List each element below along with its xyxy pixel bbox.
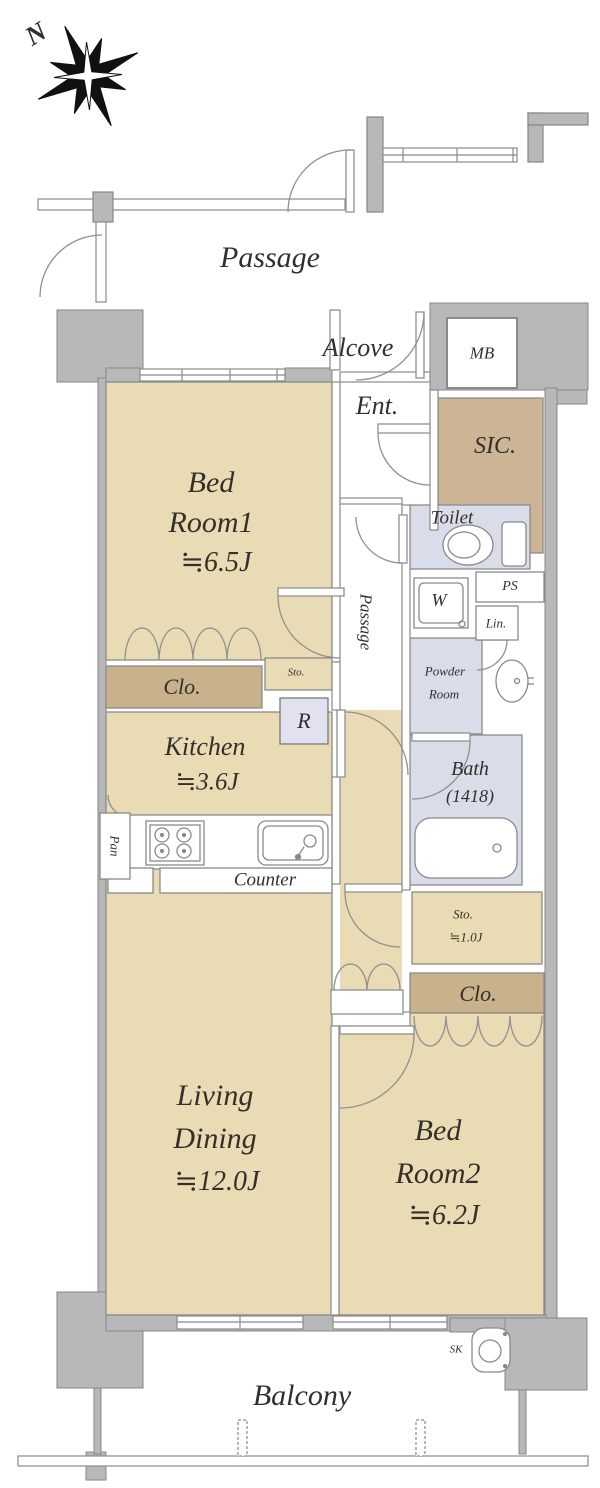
storage-br2-label: Sto. (453, 908, 473, 921)
linen-label: Lin. (486, 617, 507, 630)
wall-top-a (106, 368, 140, 382)
corridor-passage-label: Passage (220, 243, 320, 273)
bedroom2-label-line2: Room2 (396, 1159, 481, 1189)
toilet-door-arc (356, 517, 402, 563)
powder-room-label-line1: Powder (425, 665, 465, 678)
toilet-label: Toilet (431, 509, 474, 528)
refrigerator-label: R (297, 710, 310, 732)
bedroom1-window (140, 369, 285, 381)
wash-basin-icon (496, 660, 534, 702)
living-storage-box (331, 990, 403, 1014)
inner-passage-label: Passage (358, 594, 375, 651)
passage-west-wall-upper (332, 662, 340, 710)
passage-west-wall-lower (332, 777, 340, 884)
corridor-door-arc-left (40, 235, 102, 297)
living-door-leaf (345, 884, 402, 892)
slop-sink-icon (472, 1328, 510, 1372)
stove-icon (146, 821, 204, 865)
living-balcony-window (177, 1316, 303, 1329)
shoe-closet-label: SIC. (474, 434, 516, 458)
kitchen-sink-icon (258, 821, 328, 865)
entrance-step (340, 498, 402, 504)
balcony-railing (18, 1420, 588, 1466)
pipe-space-label: PS (502, 580, 518, 594)
floor-plan: N Passage Alcove MB Ent. SIC. Bed Room1 … (0, 0, 600, 1488)
front-door-leaf (378, 424, 430, 433)
storage-hall-label: Sto. (288, 668, 305, 679)
bath-door-leaf (412, 733, 470, 741)
entrance-label: Ent. (356, 393, 399, 419)
bedroom1-size-label: ≒6.5J (181, 549, 252, 577)
living-label-line1: Living (177, 1081, 254, 1111)
living-label-line2: Dining (173, 1124, 256, 1154)
storage-br2-floor (412, 892, 542, 964)
closet-br2-label: Clo. (459, 983, 496, 1005)
meter-box-label: MB (470, 345, 495, 362)
passage-south-floor (340, 710, 402, 1012)
balcony-side-right (519, 1390, 526, 1454)
bedroom2-west-wall (331, 1026, 339, 1315)
pantry-label: Pan (109, 836, 122, 857)
balcony-side-left (94, 1388, 101, 1454)
kitchen-size-label: ≒3.6J (175, 770, 238, 795)
corridor-door-leaf (346, 150, 354, 212)
powder-room-label-line2: Room (429, 688, 459, 701)
bedroom1-label-line2: Room1 (169, 508, 254, 538)
bath-label: Bath (451, 759, 489, 779)
balcony-label: Balcony (253, 1381, 351, 1411)
kitchen-door-leaf (337, 710, 345, 777)
toilet-door-leaf (399, 515, 407, 563)
bedroom1-door-leaf (278, 588, 344, 596)
bath-size-label: (1418) (446, 787, 494, 805)
bedroom2-door-leaf (340, 1026, 414, 1034)
bedroom2-balcony-window (333, 1316, 447, 1329)
wall-right (545, 388, 557, 1318)
closet-br1-label: Clo. (163, 676, 200, 698)
wall-right-step (557, 390, 587, 404)
washer-label: W (432, 591, 447, 609)
kitchen-label: Kitchen (165, 734, 246, 760)
bedroom1-label-line1: Bed (188, 468, 235, 498)
alcove-label: Alcove (323, 335, 394, 361)
floor-plan-drawing (0, 0, 600, 1488)
bathtub-icon (415, 818, 517, 878)
kitchen-living-floor (106, 712, 332, 1315)
storage-br2-size-label: ≒1.0J (450, 931, 483, 944)
wall-top-b (285, 368, 332, 382)
bedroom1-east-wall (332, 382, 340, 662)
front-door-arc (378, 433, 430, 485)
corridor-doors (40, 150, 354, 297)
bedroom2-size-label: ≒6.2J (409, 1202, 480, 1230)
bedroom2-label-line1: Bed (415, 1116, 462, 1146)
pillar-bottom-right (505, 1318, 587, 1390)
living-size-label: ≒12.0J (175, 1168, 260, 1196)
counter-label: Counter (234, 871, 296, 890)
slop-sink-label: SK (450, 1345, 463, 1356)
